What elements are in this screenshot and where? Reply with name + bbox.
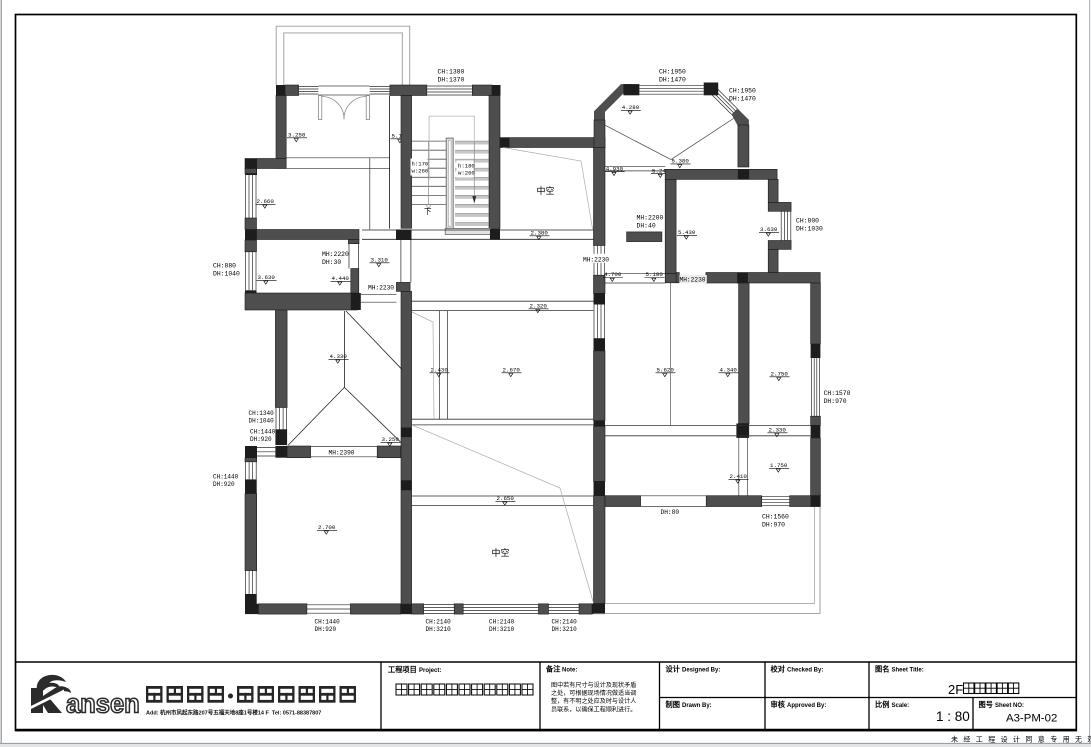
svg-text:DH:1040: DH:1040 — [249, 418, 275, 425]
svg-text:1.750: 1.750 — [770, 462, 788, 469]
svg-text:5.380: 5.380 — [672, 158, 690, 165]
svg-text:4.930: 4.930 — [606, 165, 624, 172]
svg-text:2.410: 2.410 — [730, 473, 748, 480]
svg-text:MH:2390: MH:2390 — [329, 450, 355, 457]
svg-text:2.380: 2.380 — [531, 230, 549, 237]
svg-text:CH:2140: CH:2140 — [552, 619, 578, 626]
svg-text:MH:2200: MH:2200 — [637, 215, 664, 222]
svg-text:图名: 图名 — [875, 665, 889, 674]
svg-text:CH:1570: CH:1570 — [824, 390, 851, 397]
svg-text:Scale:: Scale: — [892, 703, 910, 709]
svg-text:审核: 审核 — [771, 700, 786, 709]
svg-text:4.330: 4.330 — [330, 353, 348, 360]
svg-text:CH:1560: CH:1560 — [762, 514, 789, 521]
svg-text:Approved By:: Approved By: — [787, 703, 826, 709]
svg-text:5.430: 5.430 — [678, 229, 696, 236]
svg-text:Project:: Project: — [419, 668, 441, 674]
svg-text:2.330: 2.330 — [769, 427, 787, 434]
svg-text:2.670: 2.670 — [503, 367, 521, 374]
svg-text:DH:1370: DH:1370 — [438, 77, 465, 84]
svg-text:5.180: 5.180 — [646, 271, 664, 278]
svg-text:备注: 备注 — [545, 665, 561, 674]
svg-text:4.340: 4.340 — [720, 367, 738, 374]
svg-text:ansen: ansen — [66, 691, 140, 719]
svg-text:DH:3210: DH:3210 — [489, 626, 515, 633]
svg-text:MH:2230: MH:2230 — [368, 285, 394, 292]
svg-text:A3-PM-02: A3-PM-02 — [1006, 713, 1057, 725]
svg-text:DH:3210: DH:3210 — [552, 626, 578, 633]
svg-text:设计: 设计 — [666, 665, 681, 674]
svg-text:2.750: 2.750 — [771, 371, 789, 378]
svg-text:CH:2140: CH:2140 — [489, 619, 515, 626]
svg-text:2.700: 2.700 — [318, 524, 336, 531]
svg-text:3.250: 3.250 — [288, 132, 306, 139]
svg-text:图号: 图号 — [979, 700, 993, 709]
svg-text:CH:2140: CH:2140 — [426, 619, 452, 626]
svg-text:中空: 中空 — [492, 547, 510, 558]
svg-text:校对: 校对 — [771, 665, 786, 674]
svg-text:之处，可根据现场情况做适当调: 之处，可根据现场情况做适当调 — [551, 689, 636, 697]
svg-text:2.660: 2.660 — [257, 198, 275, 205]
svg-text:CH:800: CH:800 — [796, 218, 819, 225]
svg-text:4.700: 4.700 — [604, 271, 622, 278]
svg-text:制图: 制图 — [666, 700, 680, 709]
svg-text:整，有不明之处应及时与设计人: 整，有不明之处应及时与设计人 — [551, 697, 636, 705]
svg-text:3.310: 3.310 — [371, 257, 389, 264]
svg-text:DH:1030: DH:1030 — [796, 226, 823, 233]
svg-text:Sheet NO:: Sheet NO: — [995, 703, 1024, 709]
svg-text:w:260: w:260 — [458, 170, 475, 177]
svg-text:Checked By:: Checked By: — [787, 668, 823, 674]
svg-text:DH:970: DH:970 — [824, 398, 847, 405]
svg-text:DH:1040: DH:1040 — [213, 271, 240, 278]
svg-text:DH:920: DH:920 — [315, 626, 337, 633]
svg-text:5.620: 5.620 — [657, 367, 675, 374]
svg-text:下: 下 — [424, 207, 432, 216]
svg-text:DH:3210: DH:3210 — [426, 626, 452, 633]
svg-text:CH:1340: CH:1340 — [249, 410, 275, 417]
svg-text:未经工程设计同意专用无效: 未经工程设计同意专用无效 — [951, 735, 1091, 744]
svg-text:MH:2230: MH:2230 — [583, 257, 609, 264]
svg-text:CH:1950: CH:1950 — [729, 88, 756, 95]
svg-text:2.650: 2.650 — [497, 495, 515, 502]
svg-text:w:260: w:260 — [412, 168, 429, 175]
svg-text:CH:1440: CH:1440 — [213, 474, 239, 481]
svg-text:比例: 比例 — [875, 700, 889, 709]
svg-text:Note:: Note: — [562, 668, 577, 674]
svg-text:2.320: 2.320 — [530, 303, 548, 310]
svg-text:CH:1950: CH:1950 — [659, 69, 686, 76]
svg-text:CH:1380: CH:1380 — [438, 69, 465, 76]
svg-text:Drawn By:: Drawn By: — [682, 703, 712, 709]
svg-text:工程项目: 工程项目 — [388, 665, 417, 674]
svg-text:中空: 中空 — [537, 185, 555, 196]
svg-text:DH:40: DH:40 — [637, 223, 656, 230]
svg-text:DH:1470: DH:1470 — [659, 77, 686, 84]
svg-text:CH:880: CH:880 — [213, 263, 236, 270]
svg-text:Add: 杭州市凤起东路207号五福天地8座1号楼14 F: Add: 杭州市凤起东路207号五福天地8座1号楼14 F Tel: 0571-… — [146, 709, 321, 717]
svg-text:Designed By:: Designed By: — [682, 668, 720, 674]
svg-text:2F: 2F — [948, 682, 963, 697]
svg-text:4.440: 4.440 — [332, 275, 350, 282]
svg-text:CH:1440: CH:1440 — [250, 429, 276, 436]
svg-text:员联系，以确保工程顺利进行。: 员联系，以确保工程顺利进行。 — [551, 705, 636, 713]
svg-text:3.630: 3.630 — [258, 274, 276, 281]
svg-text:DH:920: DH:920 — [250, 436, 272, 443]
svg-text:图中若有尺寸与设计及现状矛盾: 图中若有尺寸与设计及现状矛盾 — [551, 681, 636, 689]
svg-text:DH:1470: DH:1470 — [729, 96, 756, 103]
svg-text:4.280: 4.280 — [622, 104, 640, 111]
svg-text:Sheet Title:: Sheet Title: — [892, 668, 924, 674]
svg-text:CH:1440: CH:1440 — [315, 619, 341, 626]
svg-text:DH:80: DH:80 — [661, 509, 680, 516]
svg-text:MH:2230: MH:2230 — [680, 277, 706, 284]
svg-text:h:170: h:170 — [412, 161, 429, 168]
svg-text:h:180: h:180 — [458, 163, 475, 170]
svg-text:3.630: 3.630 — [760, 226, 778, 233]
svg-text:1 : 80: 1 : 80 — [936, 709, 970, 724]
svg-text:3.250: 3.250 — [382, 436, 400, 443]
svg-text:MH:2220: MH:2220 — [322, 251, 349, 258]
svg-text:DH:920: DH:920 — [213, 481, 235, 488]
svg-text:DH:970: DH:970 — [762, 522, 785, 529]
svg-text:DH:30: DH:30 — [322, 259, 341, 266]
